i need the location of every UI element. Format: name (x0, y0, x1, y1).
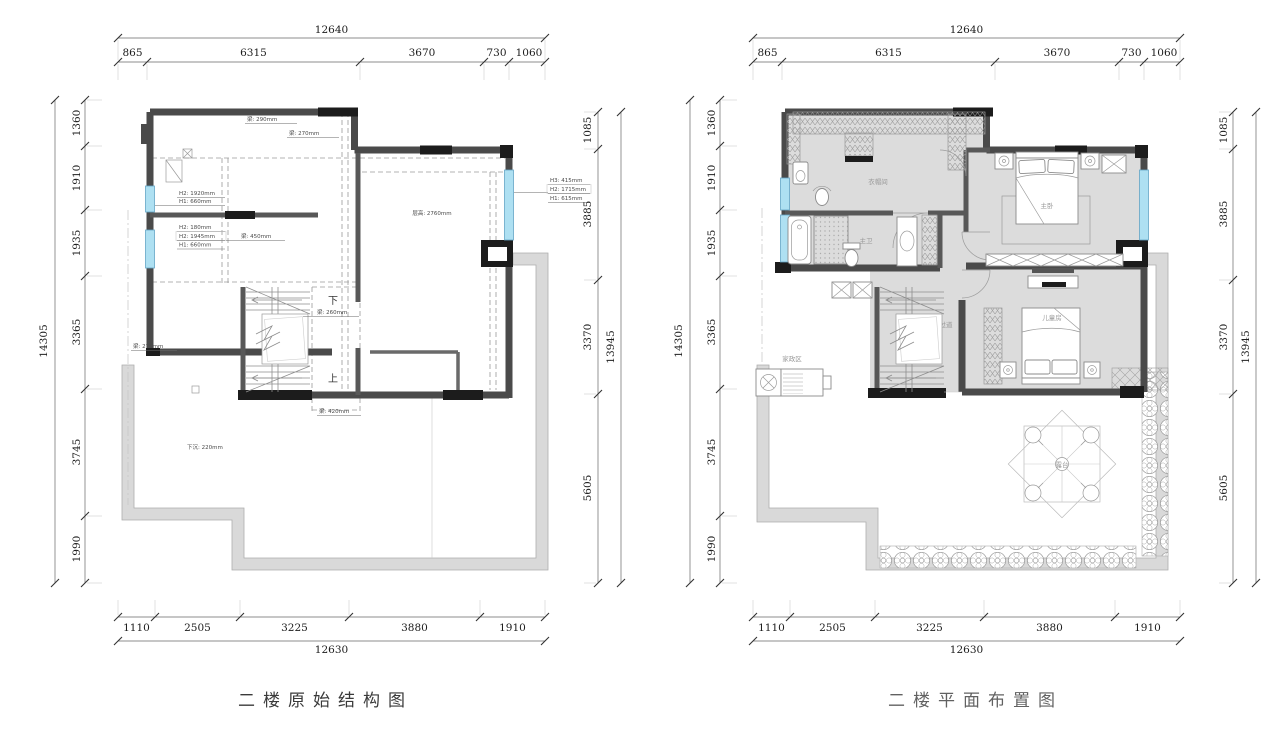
dim-top-seg: 730 (486, 47, 506, 59)
left-plan-right-dimensions: 1085 3885 3370 5605 13945 (582, 108, 625, 587)
dim-right-seg: 3370 (1218, 324, 1230, 351)
dim-bottom-seg: 3225 (916, 622, 943, 634)
window-left2-h2a: H2: 180mm (179, 225, 211, 231)
window-right-h3: H3: 415mm (550, 178, 582, 184)
left-plan-left-dimensions: 1360 1910 1935 3365 3745 1990 14305 (38, 96, 102, 587)
dim-bottom-seg: 2505 (184, 622, 211, 634)
nightstand (1000, 362, 1016, 378)
dim-bottom-seg: 3880 (401, 622, 428, 634)
window-left1-h2: H2: 1920mm (179, 191, 215, 197)
dim-right-seg: 3885 (582, 201, 594, 228)
window-left1-h1: H1: 660mm (179, 199, 211, 205)
linen-closet (922, 215, 937, 265)
dim-bottom-seg: 3880 (1036, 622, 1063, 634)
flower-border-right (1142, 372, 1168, 556)
window (146, 230, 155, 268)
dim-right-seg: 1085 (582, 117, 594, 144)
dim-bottom-seg: 1110 (123, 622, 150, 634)
headboard (1016, 152, 1078, 158)
dim-left-total: 14305 (673, 324, 685, 357)
nightstand (995, 153, 1013, 169)
window-right-h1: H1: 615mm (550, 196, 582, 202)
stair-up-label: 上 (328, 373, 338, 385)
dim-top-seg: 865 (122, 47, 142, 59)
beam-420-label: 梁: 420mm (319, 407, 349, 415)
dim-top-seg: 1060 (516, 47, 543, 59)
dim-right-seg: 5605 (1218, 475, 1230, 502)
window (505, 170, 514, 240)
dim-right-seg: 5605 (582, 475, 594, 502)
dim-top-total: 12640 (315, 24, 348, 36)
window (146, 186, 155, 212)
kids-wardrobe (984, 308, 1002, 384)
shower (814, 216, 848, 264)
terrace-label: 露台 (1056, 460, 1069, 469)
dim-bottom-total: 12630 (315, 644, 348, 656)
dim-top-seg: 865 (757, 47, 777, 59)
laundry-label: 家政区 (782, 354, 802, 363)
left-plan-bottom-dimensions: 1110 2505 3225 3880 1910 12630 (114, 600, 549, 656)
window-right-h2: H2: 1715mm (550, 187, 586, 193)
left-plan-walls (141, 108, 514, 401)
beam-450-label: 梁: 450mm (241, 232, 271, 240)
dim-bottom-seg: 1110 (758, 622, 785, 634)
right-plan-laundry: 家政区 (756, 354, 831, 396)
right-plan-left-dimensions: 1360 1910 1935 3365 3745 1990 14305 (673, 96, 737, 587)
nightstand (1084, 362, 1100, 378)
dim-left-seg: 1935 (706, 230, 718, 257)
dim-left-seg: 1910 (71, 165, 83, 192)
dim-top-seg: 730 (1121, 47, 1141, 59)
sunken-label: 下沉: 220mm (187, 443, 223, 451)
dim-left-seg: 1935 (71, 230, 83, 257)
dim-right-seg: 1085 (1218, 117, 1230, 144)
dim-left-seg: 3745 (706, 439, 718, 466)
master-bedroom-label: 主卧 (1041, 201, 1055, 210)
beam-270-left-label: 梁: 270mm (133, 342, 163, 350)
left-plan-caption: 二楼原始结构图 (238, 686, 413, 711)
dim-left-total: 14305 (38, 324, 50, 357)
kids-room-label: 儿童房 (1042, 313, 1062, 322)
right-plan-top-dimensions: 12640 865 6315 3670 730 1060 (749, 24, 1184, 80)
ceiling-height-label: 层高: 2760mm (412, 209, 451, 217)
dim-top-total: 12640 (950, 24, 983, 36)
dim-left-seg: 1360 (71, 110, 83, 137)
left-plan-stairs (246, 287, 310, 392)
dim-left-seg: 1990 (71, 536, 83, 563)
dressing-stool (816, 189, 829, 206)
dim-top-seg: 1060 (1151, 47, 1178, 59)
floorplan-sheet: { "captions": { "left": "二楼原始结构图", "righ… (0, 0, 1280, 730)
left-plan-beam-lines (152, 112, 507, 412)
right-plan-parasol-table: 露台 (1008, 410, 1115, 517)
toilet-tank (843, 243, 860, 249)
window (781, 178, 790, 210)
dim-right-seg: 3885 (1218, 201, 1230, 228)
flower-border-bottom (880, 546, 1136, 568)
window-left2-h2b: H2: 1945mm (179, 234, 215, 240)
stair-down-label: 下 (328, 296, 338, 307)
nightstand (1081, 153, 1099, 169)
dim-top-seg: 6315 (875, 47, 902, 59)
dim-right-total: 13945 (605, 330, 617, 363)
beam-270-top-label: 梁: 270mm (289, 129, 319, 137)
right-plan-right-dimensions: 1085 3885 3370 5605 13945 (1218, 108, 1260, 587)
dim-left-seg: 3365 (71, 319, 83, 346)
dim-bottom-seg: 3225 (281, 622, 308, 634)
beam-290-label: 梁: 290mm (247, 115, 277, 123)
dim-right-total: 13945 (1240, 330, 1252, 363)
dim-bottom-seg: 1910 (499, 622, 526, 634)
window-left2-h1: H1: 660mm (179, 243, 211, 249)
dim-left-seg: 1360 (706, 110, 718, 137)
dim-top-seg: 6315 (240, 47, 267, 59)
dim-bottom-total: 12630 (950, 644, 983, 656)
dim-left-seg: 1910 (706, 165, 718, 192)
dim-left-seg: 1990 (706, 536, 718, 563)
floorplan-canvas: 梁: 290mm 梁: 270mm H2: 1920mm H1: 660mm H… (0, 0, 1280, 730)
window (1140, 170, 1149, 240)
dim-top-seg: 3670 (409, 47, 436, 59)
tv (1032, 268, 1074, 273)
dim-left-seg: 3745 (71, 439, 83, 466)
dim-top-seg: 3670 (1044, 47, 1071, 59)
dim-right-seg: 3370 (582, 324, 594, 351)
right-plan: 衣帽间 主卫 主卧 (673, 24, 1260, 656)
dim-bottom-seg: 1910 (1134, 622, 1161, 634)
dim-bottom-seg: 2505 (819, 622, 846, 634)
left-plan-top-dimensions: 12640 865 6315 3670 730 1060 (114, 24, 549, 80)
master-bath-label: 主卫 (860, 236, 874, 245)
left-plan: 梁: 290mm 梁: 270mm H2: 1920mm H1: 660mm H… (38, 24, 625, 656)
left-plan-annotations: 梁: 290mm 梁: 270mm H2: 1920mm H1: 660mm H… (131, 115, 591, 451)
toilet (845, 250, 858, 267)
cloakroom-label: 衣帽间 (868, 177, 888, 186)
dim-left-seg: 3365 (706, 319, 718, 346)
right-plan-caption: 二楼平面布置图 (888, 686, 1063, 711)
beam-260-label: 梁: 260mm (317, 308, 347, 316)
right-plan-bottom-dimensions: 1110 2505 3225 3880 1910 12630 (749, 600, 1184, 656)
